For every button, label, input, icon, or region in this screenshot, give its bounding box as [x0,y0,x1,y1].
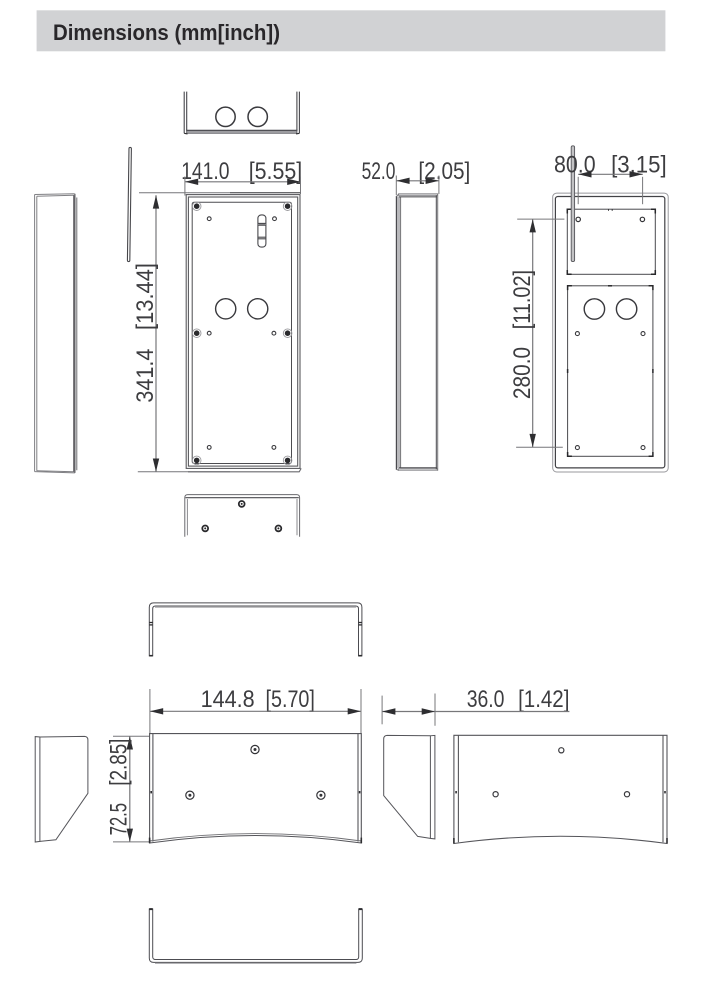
svg-text:72.5: 72.5 [105,803,132,836]
svg-text:[11.02]: [11.02] [509,270,536,329]
svg-text:[13.44]: [13.44] [132,263,159,330]
svg-text:141.0: 141.0 [181,158,229,185]
svg-text:36.0: 36.0 [467,686,505,713]
svg-text:341.4: 341.4 [132,349,159,403]
svg-text:280.0: 280.0 [509,347,536,399]
svg-text:[5.70]: [5.70] [266,686,315,713]
svg-text:[2.85]: [2.85] [105,739,132,786]
svg-text:144.8: 144.8 [201,686,255,713]
svg-text:[1.42]: [1.42] [518,686,569,713]
svg-text:Dimensions (mm[inch]): Dimensions (mm[inch]) [53,20,280,45]
svg-text:52.0: 52.0 [362,158,396,185]
